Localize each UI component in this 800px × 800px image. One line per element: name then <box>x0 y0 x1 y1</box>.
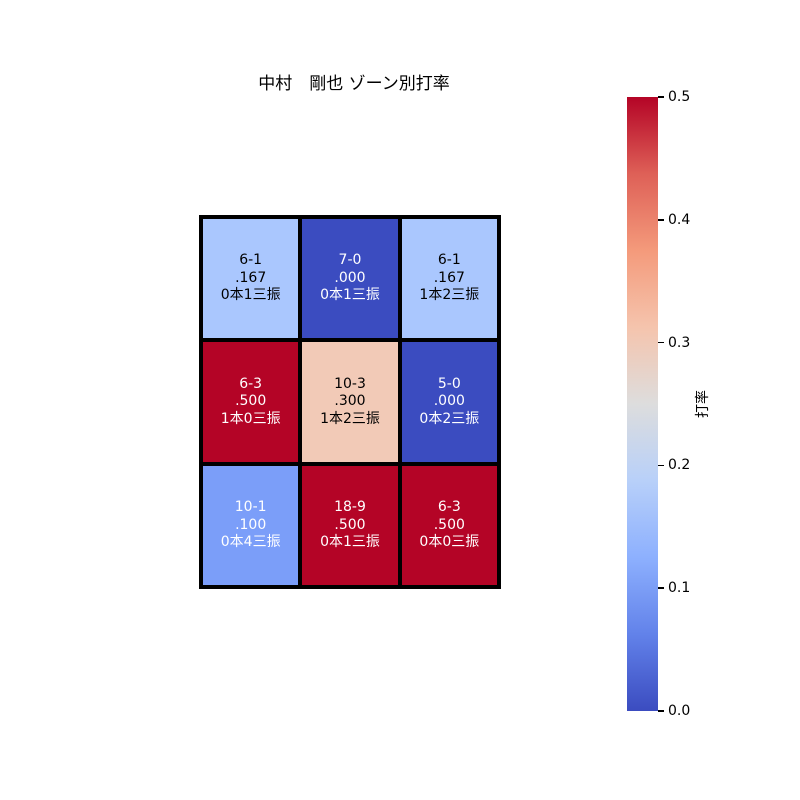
colorbar-tick: 0.2 <box>658 457 690 473</box>
tick-dash <box>658 342 664 344</box>
colorbar-axis-label: 打率 <box>692 390 712 418</box>
cell-avg: .300 <box>334 393 365 411</box>
cell-record: 10-1 <box>235 499 267 517</box>
page-title: 中村 剛也 ゾーン別打率 <box>199 69 509 94</box>
cell-note: 0本0三振 <box>419 534 479 552</box>
heatmap-cell-top-center: 7-0 .000 0本1三振 <box>302 219 397 338</box>
cell-record: 6-3 <box>239 376 262 394</box>
colorbar-tick: 0.1 <box>658 580 690 596</box>
cell-note: 0本4三振 <box>221 534 281 552</box>
colorbar-gradient <box>627 97 658 711</box>
cell-record: 7-0 <box>339 252 362 270</box>
cell-avg: .000 <box>334 270 365 288</box>
tick-dash <box>658 96 664 98</box>
cell-record: 6-1 <box>438 252 461 270</box>
colorbar-tick: 0.0 <box>658 703 690 719</box>
heatmap-cell-middle-center: 10-3 .300 1本2三振 <box>302 342 397 461</box>
tick-dash <box>658 219 664 221</box>
tick-label: 0.4 <box>668 212 690 228</box>
tick-dash <box>658 465 664 467</box>
cell-note: 1本2三振 <box>419 287 479 305</box>
heatmap-cell-middle-left: 6-3 .500 1本0三振 <box>203 342 298 461</box>
cell-record: 18-9 <box>334 499 366 517</box>
cell-note: 0本1三振 <box>320 287 380 305</box>
heatmap: 6-1 .167 0本1三振 7-0 .000 0本1三振 6-1 .167 1… <box>199 215 501 589</box>
cell-note: 1本0三振 <box>221 411 281 429</box>
cell-avg: .500 <box>434 517 465 535</box>
cell-avg: .000 <box>434 393 465 411</box>
cell-avg: .167 <box>434 270 465 288</box>
heatmap-cell-top-left: 6-1 .167 0本1三振 <box>203 219 298 338</box>
heatmap-cell-bottom-right: 6-3 .500 0本0三振 <box>402 466 497 585</box>
tick-label: 0.0 <box>668 703 690 719</box>
tick-dash <box>658 587 664 589</box>
figure: 中村 剛也 ゾーン別打率 6-1 .167 0本1三振 7-0 .000 0本1… <box>0 0 800 800</box>
cell-note: 0本2三振 <box>419 411 479 429</box>
cell-avg: .167 <box>235 270 266 288</box>
heatmap-cell-top-right: 6-1 .167 1本2三振 <box>402 219 497 338</box>
tick-label: 0.2 <box>668 457 690 473</box>
tick-dash <box>658 710 664 712</box>
cell-note: 0本1三振 <box>320 534 380 552</box>
colorbar-tick: 0.4 <box>658 212 690 228</box>
tick-label: 0.1 <box>668 580 690 596</box>
cell-note: 1本2三振 <box>320 411 380 429</box>
heatmap-cell-middle-right: 5-0 .000 0本2三振 <box>402 342 497 461</box>
colorbar-tick: 0.3 <box>658 335 690 351</box>
cell-avg: .500 <box>235 393 266 411</box>
cell-avg: .500 <box>334 517 365 535</box>
cell-record: 6-3 <box>438 499 461 517</box>
cell-avg: .100 <box>235 517 266 535</box>
cell-record: 5-0 <box>438 376 461 394</box>
heatmap-cell-bottom-center: 18-9 .500 0本1三振 <box>302 466 397 585</box>
cell-note: 0本1三振 <box>221 287 281 305</box>
cell-record: 10-3 <box>334 376 366 394</box>
cell-record: 6-1 <box>239 252 262 270</box>
heatmap-cell-bottom-left: 10-1 .100 0本4三振 <box>203 466 298 585</box>
colorbar-tick: 0.5 <box>658 89 690 105</box>
tick-label: 0.5 <box>668 89 690 105</box>
tick-label: 0.3 <box>668 335 690 351</box>
